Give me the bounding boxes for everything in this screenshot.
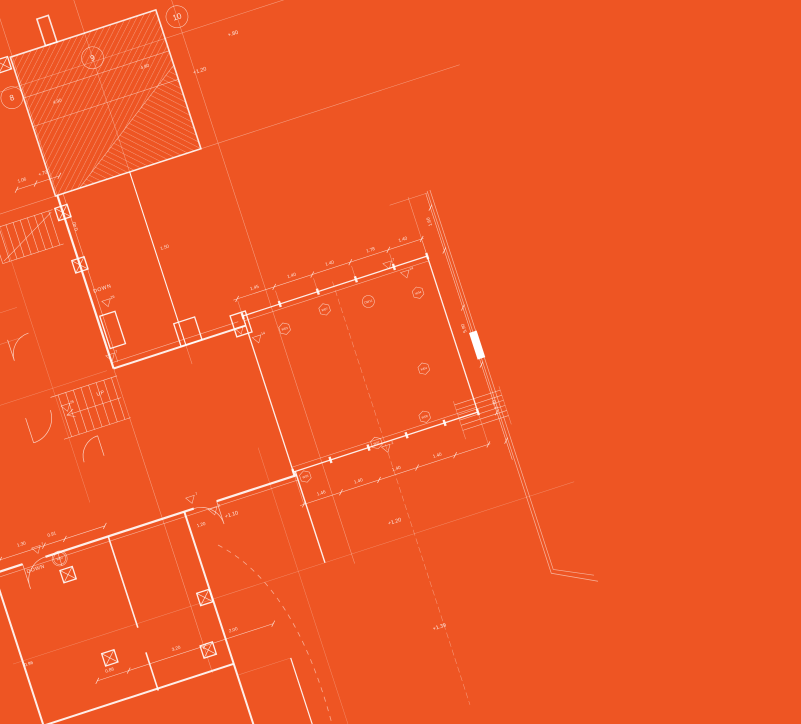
blueprint-canvas: 8910 W03W07DW11W04W04W06W05W07W02 714729… xyxy=(0,0,801,724)
floor-plan-drawing: 8910 W03W07DW11W04W04W06W05W07W02 714729… xyxy=(0,0,801,724)
